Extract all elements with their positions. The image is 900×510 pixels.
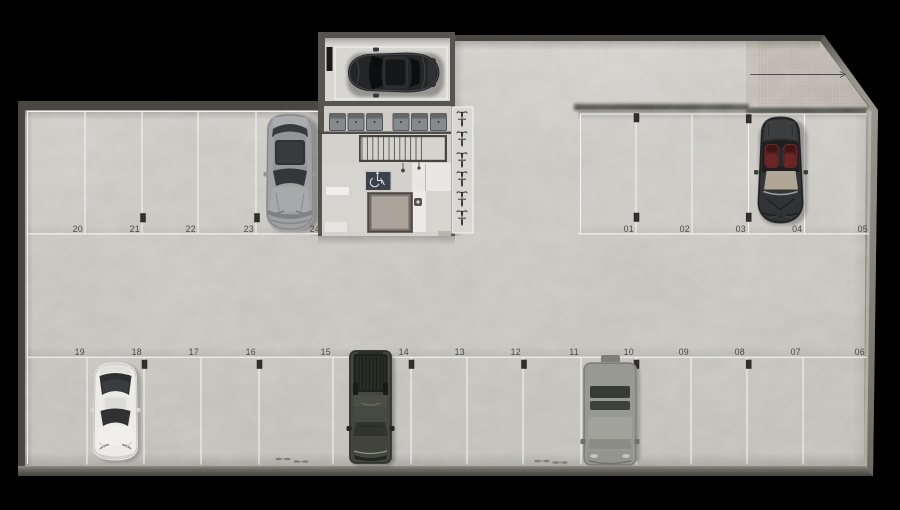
svg-text:04: 04 <box>792 224 802 234</box>
svg-text:14: 14 <box>399 347 409 357</box>
svg-text:22: 22 <box>186 224 196 234</box>
svg-text:21: 21 <box>130 224 140 234</box>
svg-text:08: 08 <box>735 347 745 357</box>
svg-text:01: 01 <box>624 224 634 234</box>
svg-text:16: 16 <box>246 347 256 357</box>
svg-text:11: 11 <box>569 347 579 357</box>
svg-text:02: 02 <box>680 224 690 234</box>
svg-text:09: 09 <box>679 347 689 357</box>
svg-text:13: 13 <box>455 347 465 357</box>
svg-text:23: 23 <box>244 224 254 234</box>
svg-text:19: 19 <box>75 347 85 357</box>
svg-text:03: 03 <box>736 224 746 234</box>
svg-text:17: 17 <box>189 347 199 357</box>
svg-text:15: 15 <box>321 347 331 357</box>
svg-text:05: 05 <box>858 224 868 234</box>
svg-text:20: 20 <box>73 224 83 234</box>
svg-text:06: 06 <box>855 347 865 357</box>
svg-text:10: 10 <box>624 347 634 357</box>
svg-text:18: 18 <box>132 347 142 357</box>
svg-text:07: 07 <box>791 347 801 357</box>
svg-text:12: 12 <box>511 347 521 357</box>
